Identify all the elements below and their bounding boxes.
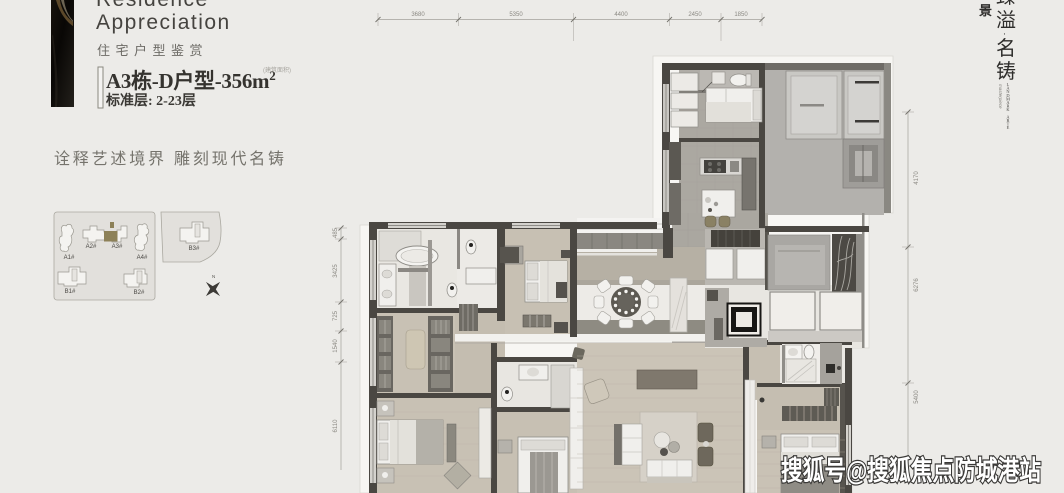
svg-text:景: 景 [979, 3, 992, 18]
svg-text:臻: 臻 [996, 0, 1016, 8]
svg-text:5400: 5400 [914, 390, 920, 404]
svg-text:诠释艺述境界 雕刻现代名铸: 诠释艺述境界 雕刻现代名铸 [54, 149, 287, 168]
svg-text:1540: 1540 [333, 339, 339, 353]
svg-text:住宅户型鉴赏: 住宅户型鉴赏 [97, 43, 208, 58]
svg-text:4400: 4400 [614, 12, 628, 18]
svg-text:N: N [212, 274, 215, 279]
svg-text:Residence: Residence [96, 0, 209, 11]
svg-text:A4#: A4# [137, 255, 148, 261]
svg-text:E: E [1007, 125, 1010, 130]
svg-text:名: 名 [996, 37, 1016, 60]
svg-text:B2#: B2# [134, 290, 145, 296]
svg-text:6110: 6110 [333, 419, 339, 433]
svg-text:2450: 2450 [688, 12, 702, 18]
svg-text:5350: 5350 [509, 12, 523, 18]
svg-text:A3#: A3# [112, 244, 123, 250]
svg-text:A3栋-D户型-356m2: A3栋-D户型-356m2 [106, 68, 275, 93]
svg-text:Appreciation: Appreciation [96, 11, 231, 34]
svg-text:1850: 1850 [734, 12, 748, 18]
svg-text:A1#: A1# [64, 255, 75, 261]
svg-text:masterpiece: masterpiece [998, 84, 1003, 109]
svg-text:A2#: A2# [86, 244, 97, 250]
svg-text:B1#: B1# [65, 289, 76, 295]
svg-text:4170: 4170 [914, 171, 920, 185]
svg-text:6276: 6276 [914, 278, 920, 292]
svg-text:3425: 3425 [333, 264, 339, 278]
svg-text:溢: 溢 [996, 9, 1016, 32]
svg-text:铸: 铸 [996, 60, 1016, 83]
svg-text:3680: 3680 [411, 12, 425, 18]
svg-text:B3#: B3# [189, 246, 200, 252]
svg-text:485: 485 [333, 227, 339, 238]
svg-text:搜狐号@搜狐焦点防城港站: 搜狐号@搜狐焦点防城港站 [781, 455, 1041, 486]
svg-text:(建筑面积): (建筑面积) [263, 66, 291, 74]
svg-text:标准层: 2-23层: 标准层: 2-23层 [105, 92, 196, 109]
svg-text:725: 725 [333, 310, 339, 321]
